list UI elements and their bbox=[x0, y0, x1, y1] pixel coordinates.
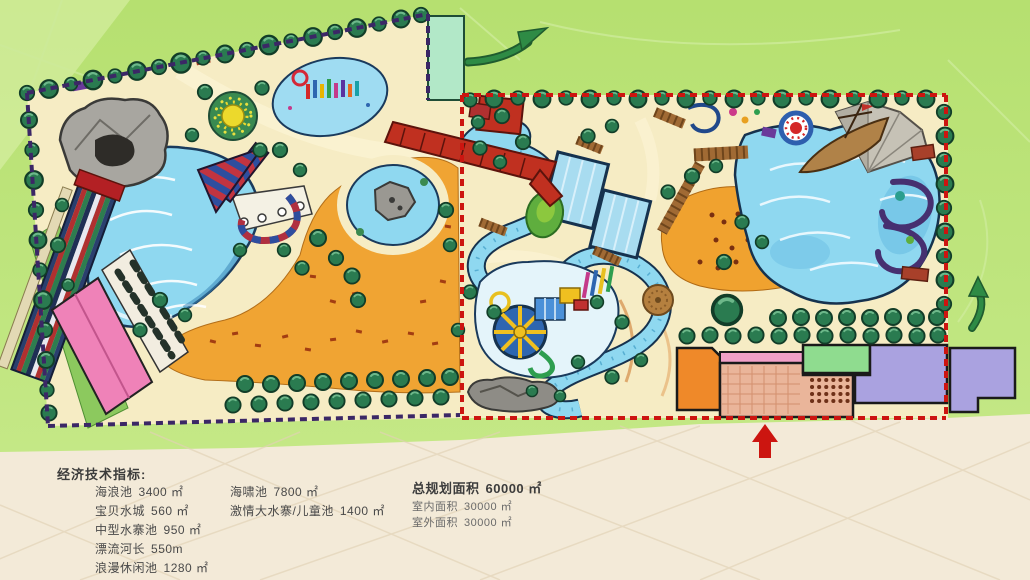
service-buildings bbox=[677, 345, 1015, 417]
pink-strip-building bbox=[720, 352, 804, 363]
site-plan-image: 经济技术指标: 海浪池3400 ㎡ 宝贝水城560 ㎡ 中型水寨池950 ㎡ 漂… bbox=[0, 0, 1030, 580]
purple-building bbox=[855, 345, 947, 403]
site-plan-canvas bbox=[0, 0, 1030, 580]
orange-building bbox=[677, 348, 720, 410]
rock-formation-right bbox=[468, 377, 559, 411]
mint-building bbox=[428, 16, 464, 100]
sun-plaza bbox=[209, 92, 257, 140]
lagoon-pool bbox=[337, 155, 449, 255]
rock-mountain bbox=[60, 99, 168, 187]
spa-pool bbox=[643, 285, 673, 315]
green-building bbox=[803, 345, 870, 373]
kids-water-wheel-area bbox=[475, 261, 618, 378]
target-feature bbox=[781, 113, 811, 143]
